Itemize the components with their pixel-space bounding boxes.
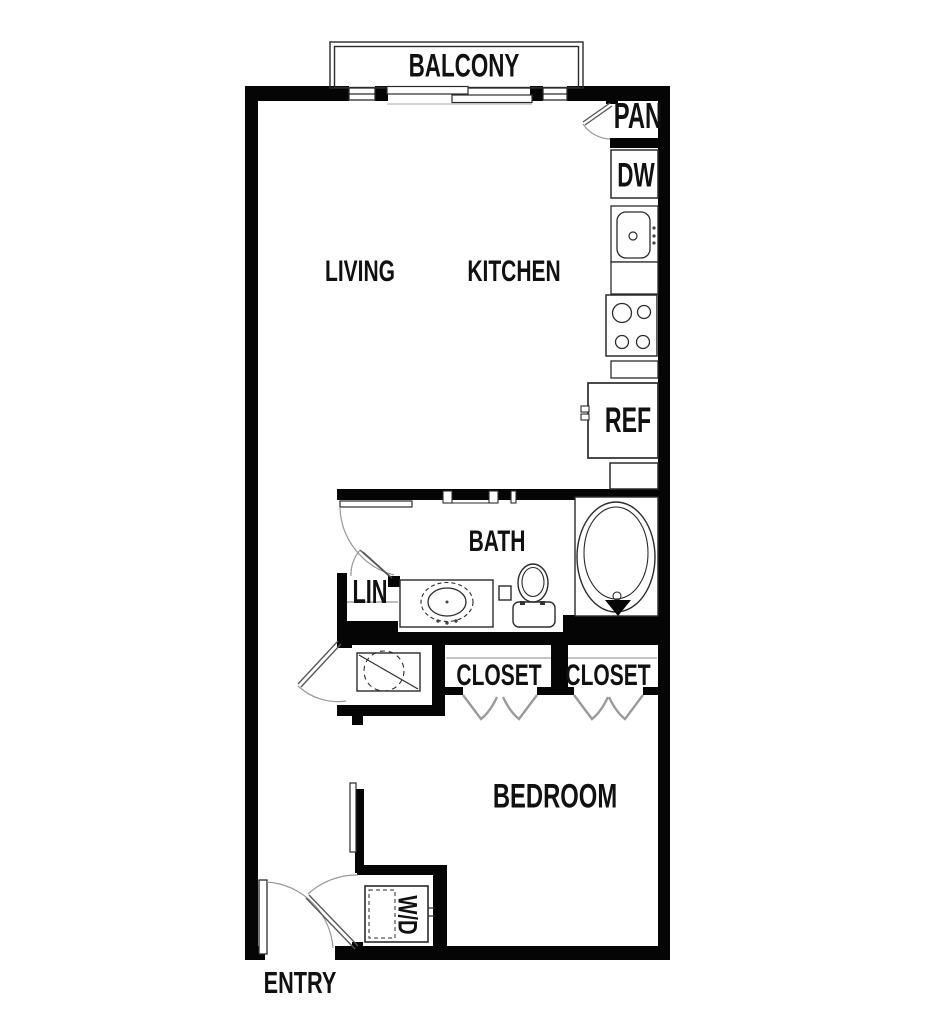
mirror-bracket-b (489, 491, 498, 503)
sliding-door-panel-outer (387, 87, 468, 95)
kitchen-sink-drain (629, 232, 637, 240)
utility-door-leaf-a (298, 641, 338, 684)
balcony-label: BALCONY (385, 48, 543, 85)
stove (606, 295, 657, 356)
washer-dryer-label: W/D (392, 889, 423, 941)
closet-right-label: CLOSET (547, 659, 669, 693)
mirror-bracket-a (443, 491, 452, 503)
wall-left (245, 86, 258, 960)
mirror-bracket-c (511, 491, 516, 503)
wd-door-leaf-a (309, 895, 358, 946)
floor-plan-page: BALCONY PAN DW LIVING KITCHEN REF BATH L… (0, 0, 942, 1023)
bath-door-arc (340, 507, 394, 575)
wall-bottom-main (335, 946, 670, 960)
utility-top-jamb (337, 626, 352, 648)
bedroom-thin-wall (350, 783, 356, 852)
bath-label: BATH (456, 525, 537, 559)
utility-bottom-wall (337, 705, 445, 716)
floor-plan-canvas (0, 0, 942, 1023)
toilet-bolt-b (540, 601, 545, 605)
counter-mid (611, 262, 658, 294)
closet1-bifold-left (463, 695, 497, 719)
bathtub-outer (577, 502, 655, 612)
utility-bottom-stub (352, 716, 363, 725)
sliding-door-panel-inner (452, 95, 532, 103)
vanity-sink-drain (446, 601, 449, 604)
utility-door-leaf-b (301, 644, 341, 687)
kitchen-label: KITCHEN (447, 255, 580, 289)
toilet-tank (513, 602, 555, 627)
wd-door-leaf-b (306, 898, 355, 949)
entry-label: ENTRY (248, 965, 352, 1001)
toilet-bolt-a (520, 601, 525, 605)
refrigerator-handle-b (581, 414, 589, 420)
closet2-bifold-left (574, 695, 608, 719)
bath-bottom-wall (337, 632, 563, 645)
kitchen-faucet-dots (652, 226, 655, 244)
wall-right (658, 86, 670, 960)
toilet-paper-holder (499, 586, 511, 600)
closet2-bifold-right (609, 695, 643, 719)
wd-closet-right-wall (433, 865, 447, 960)
counter-below-stove (611, 361, 658, 378)
entry-door-leaf (259, 880, 267, 954)
tub-bottom-wall (563, 615, 670, 645)
closet-left-label: CLOSET (438, 659, 560, 693)
closet1-bifold-right (503, 695, 537, 719)
pantry-bottom-wall (610, 138, 670, 148)
living-label: LIVING (310, 255, 410, 289)
wd-door-arc (308, 875, 358, 894)
utility-closet (298, 641, 420, 702)
refrigerator-handle-a (581, 406, 589, 412)
utility-door-arc (298, 686, 346, 702)
bedroom-label: BEDROOM (466, 778, 644, 817)
refrigerator-label: REF (593, 401, 663, 441)
cabinet-below-ref (610, 463, 658, 489)
dishwasher-label: DW (608, 157, 665, 196)
pantry-label: PAN (601, 95, 674, 137)
linen-label: LIN (343, 573, 396, 611)
bath-door-leaf (340, 501, 412, 507)
